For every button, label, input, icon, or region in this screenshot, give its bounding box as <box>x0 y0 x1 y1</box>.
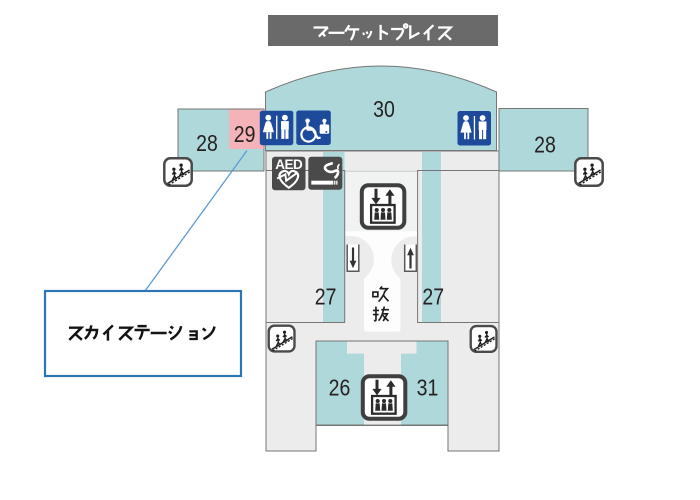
svg-text:31: 31 <box>417 375 439 401</box>
svg-text:26: 26 <box>329 375 351 401</box>
svg-text:28: 28 <box>196 130 218 156</box>
svg-text:29: 29 <box>234 121 256 147</box>
svg-text:27: 27 <box>315 284 337 310</box>
svg-text:28: 28 <box>534 132 556 158</box>
svg-text:27: 27 <box>422 284 444 310</box>
svg-text:30: 30 <box>373 96 395 122</box>
